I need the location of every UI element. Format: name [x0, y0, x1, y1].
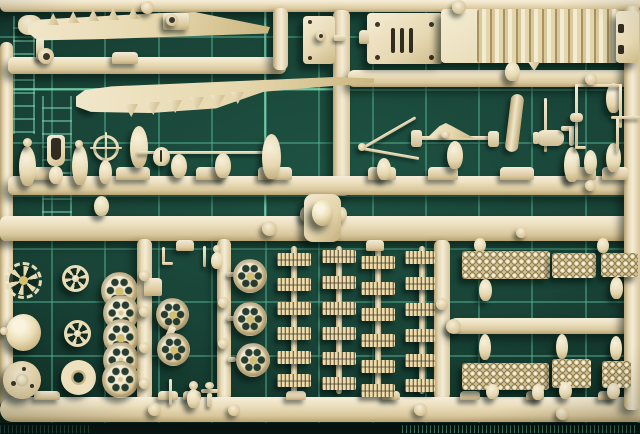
track-link-pair — [322, 250, 356, 263]
runner-joint — [112, 52, 138, 64]
grab-rail-hook — [575, 146, 586, 149]
track-link-pair — [361, 256, 395, 269]
link-runner-2 — [336, 246, 342, 394]
muffler-body — [537, 130, 564, 146]
sprocket-hub — [19, 276, 28, 285]
bullet-part-f — [584, 150, 597, 174]
track-link-pair — [322, 302, 356, 315]
runner-boss — [139, 378, 150, 389]
bottom-frame-runner — [0, 397, 640, 422]
runner-boss — [228, 404, 240, 416]
grab-rail-right — [619, 84, 622, 128]
runner-boss — [139, 342, 150, 353]
grid-line-horizontal — [0, 248, 640, 250]
small-gate — [187, 389, 200, 408]
vent-slot — [391, 28, 395, 53]
runner-boss — [141, 1, 154, 14]
runner-boss — [585, 73, 597, 85]
track-link-pair — [405, 251, 435, 264]
runner-boss — [218, 297, 229, 308]
right-frame-runner — [624, 6, 640, 410]
disc-hub — [17, 375, 27, 385]
vent-hole — [429, 22, 434, 27]
bucket-stem — [49, 166, 63, 184]
track-link-pair — [277, 327, 311, 340]
idler-hub — [72, 275, 79, 282]
track-gate — [597, 238, 609, 253]
mat-ruler-ticks — [0, 425, 90, 433]
road-wheel — [102, 361, 139, 398]
small-rod — [203, 246, 206, 267]
engine-deck-louvres — [477, 9, 618, 63]
track-link-pair — [405, 379, 435, 392]
deck-end-plate — [616, 11, 639, 63]
middle-runner-tab — [176, 240, 194, 251]
dome-nub — [0, 327, 8, 335]
axle-gate — [447, 141, 463, 169]
bullet-part-a — [130, 126, 148, 168]
wheel-runner-tab — [144, 278, 162, 296]
grab-rail-top — [575, 84, 622, 87]
deck-end-slot — [618, 24, 624, 33]
figure-2-head — [75, 140, 83, 148]
wheel-hub-putty — [247, 273, 254, 280]
track-link-pair — [277, 374, 311, 387]
sprue-photo — [0, 0, 640, 434]
bullet-part-c — [215, 153, 231, 178]
track-link-pair — [405, 303, 435, 316]
wheel-hub-putty — [171, 347, 178, 354]
link-runner-1 — [291, 246, 297, 394]
track-link-pair — [405, 354, 435, 367]
bullet-part-e — [564, 147, 580, 182]
axle-cylinder-left — [411, 130, 422, 147]
wheel-hub-putty — [116, 288, 123, 295]
small-l-rod-foot — [162, 262, 173, 265]
plate-boss-hole — [319, 34, 323, 38]
track-link-pair — [361, 384, 395, 397]
track-link-pair — [277, 278, 311, 291]
shovel-line — [160, 150, 162, 162]
runner-boss — [436, 298, 448, 310]
track-gate — [607, 383, 620, 399]
top-center-runner-a — [273, 8, 288, 70]
track-link-pair — [277, 302, 311, 315]
plate-hole — [308, 56, 312, 60]
track-section — [552, 253, 596, 278]
sight-cross-h — [90, 147, 122, 149]
muffler-cap — [533, 132, 539, 144]
track-gate — [610, 336, 622, 360]
track-section — [601, 253, 638, 277]
middle-runner-tab — [366, 240, 384, 251]
disc-hole — [22, 367, 26, 371]
runner-boss — [148, 403, 161, 416]
figure-1-head — [23, 138, 32, 147]
muffler-pipe-v — [569, 126, 574, 146]
bottom-ledge — [158, 391, 178, 400]
bullet-part-b — [171, 154, 187, 178]
grid-line-horizontal — [0, 355, 640, 357]
vent-hole — [375, 22, 380, 27]
wheel-hub-putty — [170, 312, 177, 319]
small-rod — [169, 379, 172, 405]
hull-disc-part — [3, 361, 41, 399]
deck-gate — [505, 62, 520, 81]
track-link-pair — [361, 334, 395, 347]
runner-boss — [556, 407, 569, 420]
grab-rail2-v — [616, 118, 619, 152]
plate-hole — [308, 20, 312, 24]
hatch-dome — [312, 200, 333, 226]
runner-boss — [139, 270, 150, 281]
track-gate — [610, 277, 623, 299]
axle-cylinder-right — [488, 131, 499, 147]
track-gate — [479, 334, 491, 360]
wheel-hub-putty — [250, 357, 257, 364]
bullet-part-d — [262, 134, 281, 179]
figure-part-2 — [72, 145, 88, 185]
vent-hole — [429, 55, 434, 60]
t-handle-knob — [205, 382, 214, 389]
runner-boss — [139, 306, 150, 317]
runner-boss — [446, 319, 461, 334]
vent-hole — [375, 55, 380, 60]
fender2-gate — [94, 196, 109, 216]
parts-ledge — [116, 167, 150, 180]
track-link-pair — [322, 327, 356, 340]
wheel-hub-putty — [247, 316, 254, 323]
hanger-ring-hole — [43, 53, 50, 60]
bottom-ledge — [460, 391, 480, 400]
sight-stem — [99, 160, 112, 184]
runner-boss — [414, 403, 427, 416]
track-gate — [559, 382, 572, 399]
antenna-ball — [358, 143, 366, 151]
idler-hub — [74, 330, 81, 337]
mat-ruler-ticks — [402, 425, 638, 433]
turret-ring-part — [61, 360, 96, 395]
mid-right-runner — [450, 318, 628, 334]
disc-hole — [11, 381, 16, 386]
wheel-hub-putty — [117, 335, 124, 342]
runner-boss — [218, 338, 229, 349]
bottom-ledge — [34, 391, 60, 400]
track-link-pair — [322, 352, 356, 365]
figure-part-1 — [19, 146, 36, 186]
runner-boss — [262, 221, 277, 236]
runner-boss — [452, 0, 466, 14]
disc-hole — [30, 384, 34, 388]
track-gate — [532, 384, 544, 400]
track-link-pair — [322, 276, 356, 289]
track-link-pair — [277, 351, 311, 364]
track-link-pair — [405, 329, 435, 342]
fender-ring-hole — [169, 17, 175, 23]
track-gate — [479, 279, 492, 301]
bottom-ledge — [286, 391, 306, 400]
grab-rail-foot — [570, 113, 583, 122]
axle-knob — [441, 131, 450, 138]
idler-wheel-2 — [64, 320, 91, 347]
drive-sprocket — [5, 262, 42, 299]
antenna-base — [377, 158, 391, 180]
track-section — [552, 359, 591, 388]
t-handle-stem — [207, 393, 212, 407]
runner-boss — [585, 180, 596, 191]
wheel-gate — [228, 357, 236, 362]
idler-wheel-1 — [62, 265, 89, 292]
track-gate — [556, 334, 568, 359]
link-runner-4 — [419, 246, 425, 394]
track-link-pair — [405, 277, 435, 290]
track-section-long — [462, 251, 550, 279]
track-link-pair — [322, 377, 356, 390]
track-link-pair — [361, 308, 395, 321]
parts-ledge — [500, 167, 534, 180]
small-gate — [211, 252, 223, 269]
wheel-runner-left — [137, 239, 152, 401]
track-gate — [474, 238, 486, 252]
grid-line-horizontal — [0, 301, 640, 303]
plate-hook — [334, 35, 346, 41]
track-link-pair — [361, 360, 395, 373]
track-link-pair — [361, 282, 395, 295]
vent-slot — [400, 28, 404, 53]
turret-dome-part — [6, 314, 41, 351]
track-link-pair — [277, 253, 311, 266]
deck-end-slot — [618, 45, 624, 54]
runner-boss — [516, 227, 527, 238]
track-gate — [486, 384, 499, 399]
bucket-cavity — [51, 138, 61, 160]
vent-plate-tab — [359, 30, 369, 44]
vent-slot — [409, 28, 413, 53]
